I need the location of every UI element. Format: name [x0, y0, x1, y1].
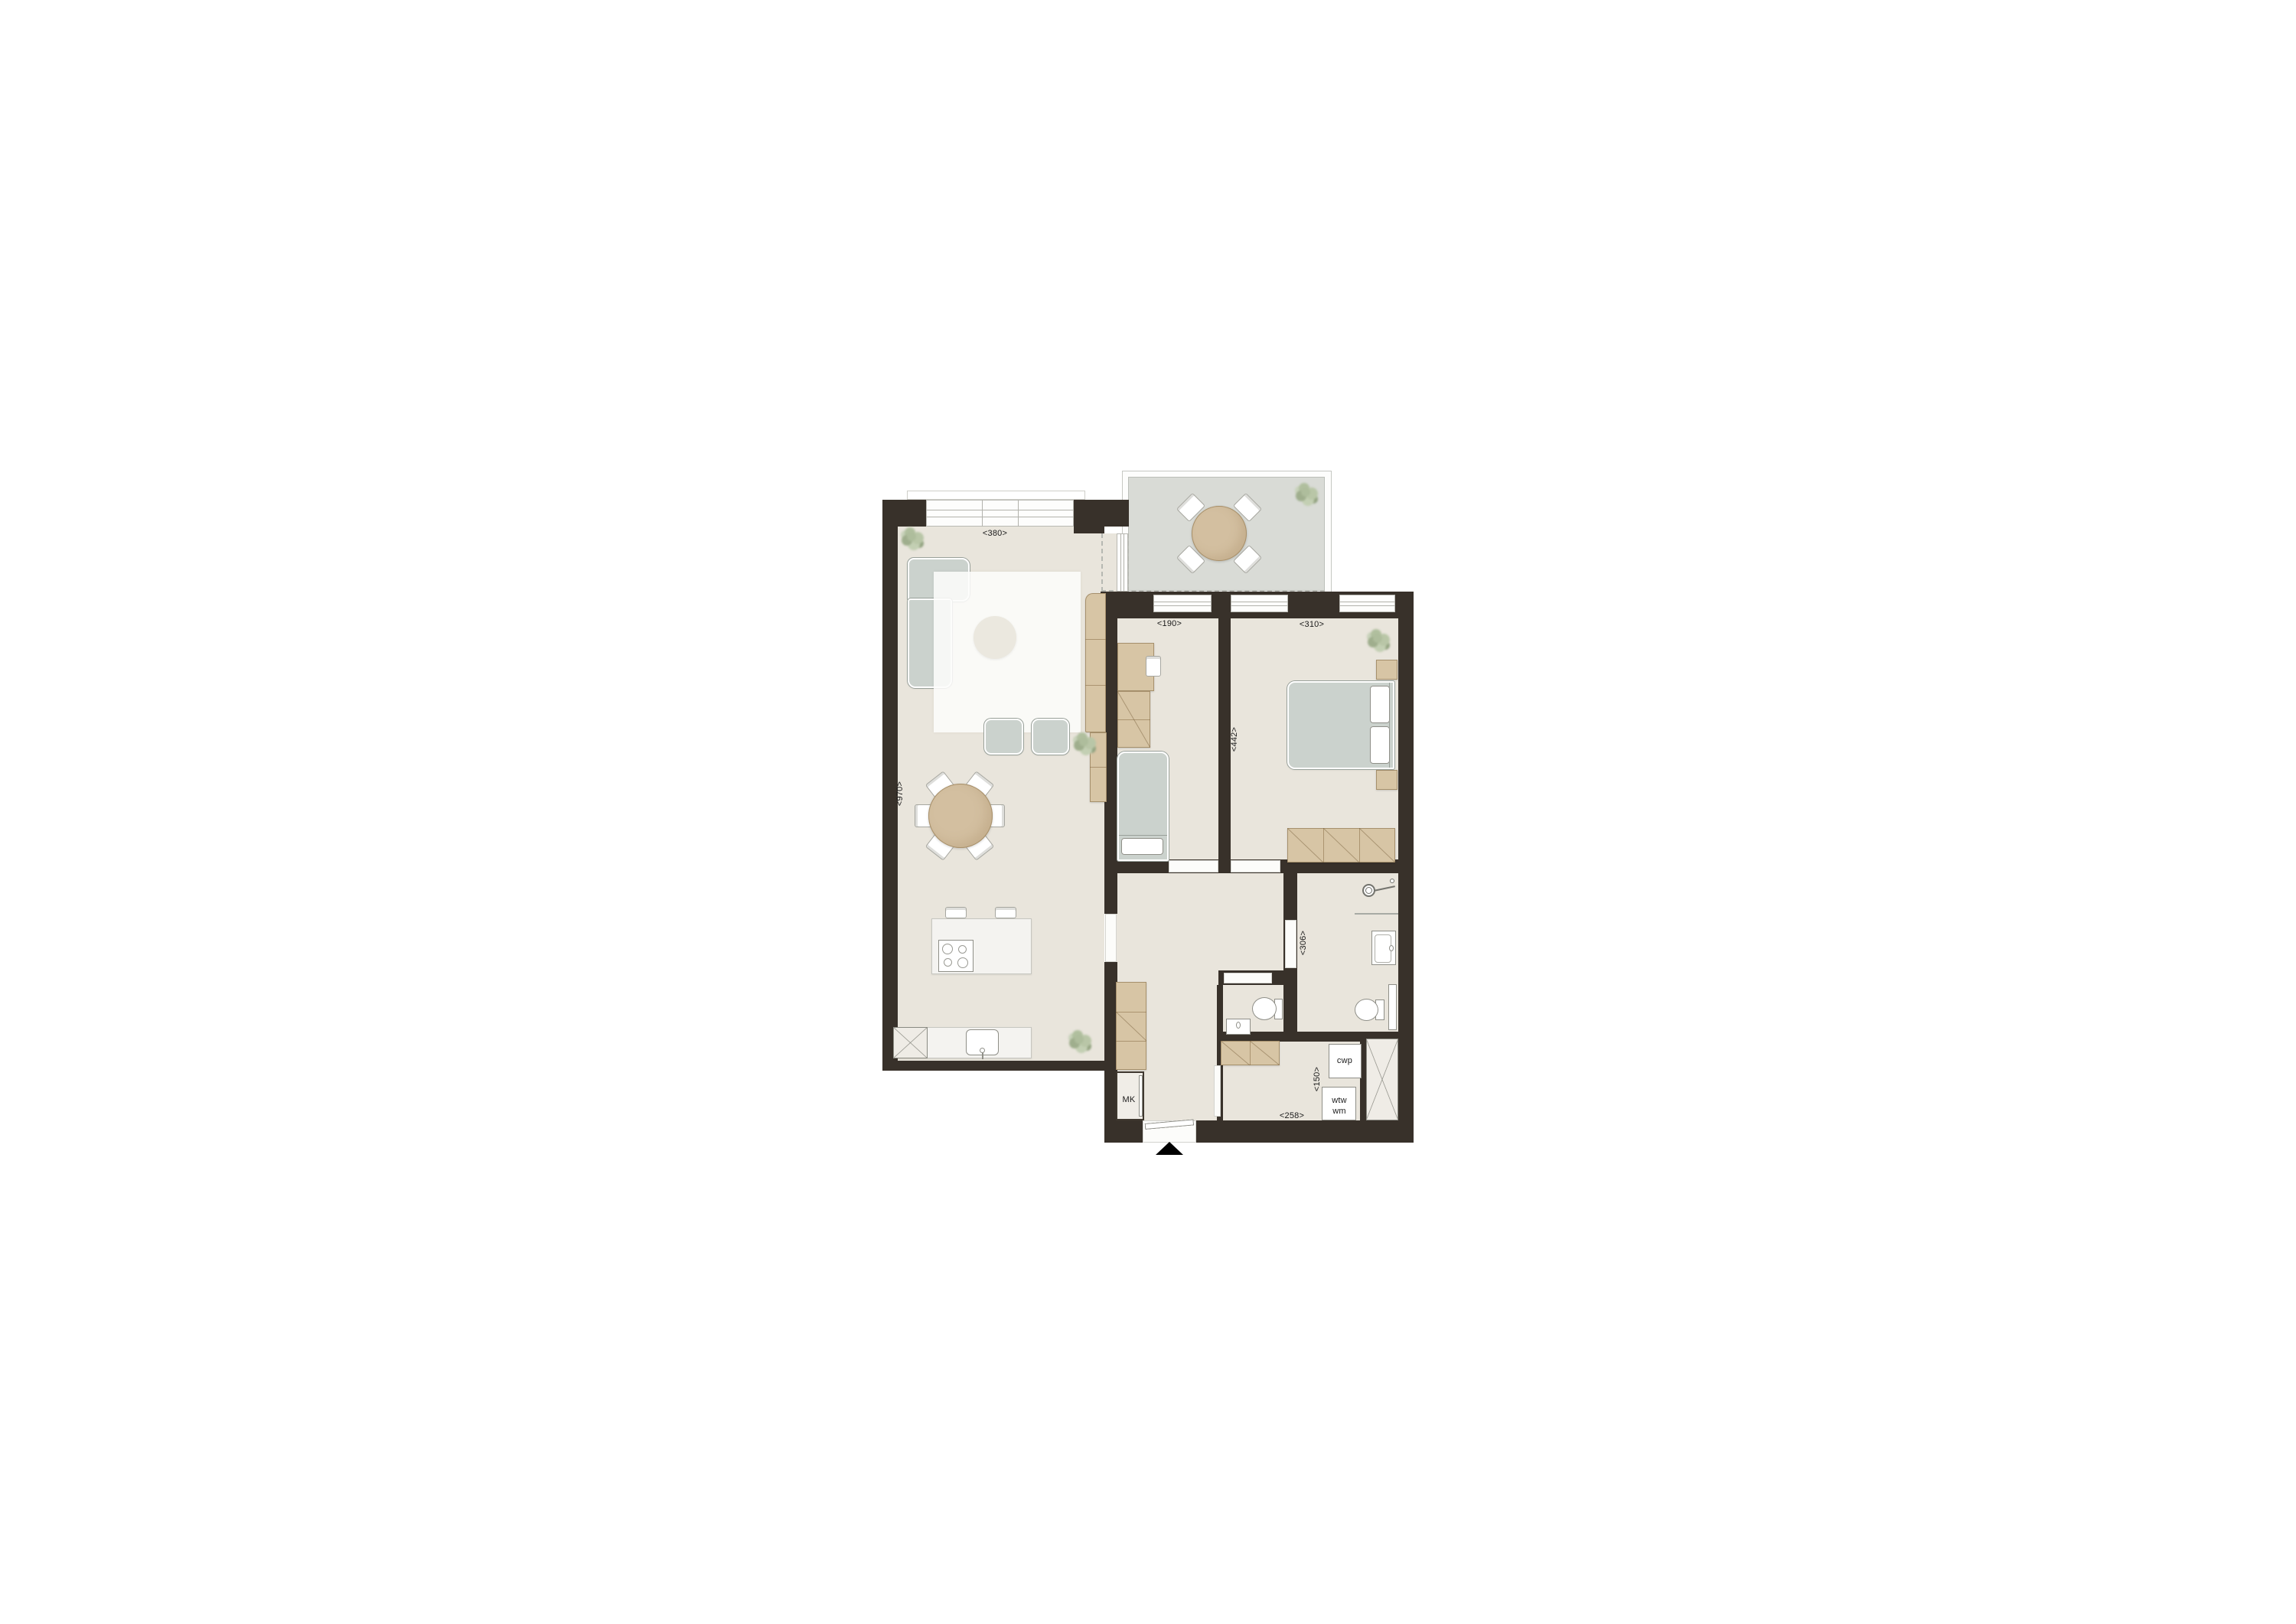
installation-shaft	[1366, 1039, 1398, 1120]
living-window-sill	[907, 491, 1085, 500]
door-bedroom2	[1169, 860, 1218, 872]
dim-utility-width: <150>	[1313, 1067, 1322, 1091]
living-low-cabinet	[1090, 732, 1107, 802]
bedroom2-cabinet	[1117, 691, 1150, 748]
living-window	[926, 500, 1074, 527]
bathroom-radiator	[1388, 984, 1397, 1030]
coffee-table	[974, 616, 1016, 659]
utility-cabinet	[1221, 1041, 1280, 1065]
bedroom1-window-right	[1339, 595, 1395, 612]
cooktop	[938, 940, 974, 972]
bathroom-toilet-bowl	[1355, 999, 1378, 1021]
door-living-hall	[1105, 914, 1117, 962]
door-bedroom1	[1231, 860, 1280, 872]
bedroom1-pillow	[1370, 726, 1390, 764]
burner	[957, 957, 968, 968]
wall-living-south	[882, 1061, 1117, 1071]
heat-pump-label: cwp	[1337, 1056, 1352, 1065]
bedroom2-window	[1153, 595, 1212, 612]
dim-bedroom2-width: <190>	[1157, 619, 1182, 628]
burner	[944, 958, 952, 967]
kitchen-appliance	[893, 1027, 928, 1058]
ottoman	[984, 719, 1023, 755]
plant	[1075, 1035, 1084, 1044]
door-wc	[1224, 973, 1272, 983]
bed-fold-line	[1119, 835, 1167, 836]
wc-basin-tap	[1236, 1022, 1241, 1029]
hall-wardrobe	[1116, 982, 1146, 1070]
ottoman	[1032, 719, 1069, 755]
living-wardrobe	[1085, 593, 1106, 732]
terrace-table	[1192, 506, 1247, 561]
floorplan: MK cwp wtw wm <380> <970> <190> <310> <4…	[0, 0, 2296, 1624]
bedroom1-wardrobe	[1287, 828, 1395, 863]
sink-tap-stem	[982, 1052, 983, 1059]
terrace-dashed-line-left	[1101, 533, 1103, 592]
wall-bedroom-divider	[1218, 618, 1231, 869]
heat-recovery-label: wtw	[1332, 1096, 1347, 1105]
living-terrace-window	[1117, 533, 1128, 592]
bedroom1-bed	[1287, 681, 1394, 769]
bedroom2-desk-chair	[1146, 656, 1161, 677]
wc-toilet-bowl	[1252, 997, 1277, 1020]
bedroom1-nightstand-top	[1376, 660, 1397, 680]
dim-hall-width: <258>	[1280, 1111, 1304, 1120]
wall-east	[1398, 592, 1414, 1143]
shower-valve	[1390, 879, 1394, 883]
bedroom1-window-left	[1231, 595, 1288, 612]
island-stool	[945, 907, 967, 918]
dim-bedroom1-width: <310>	[1300, 620, 1324, 629]
island-stool	[995, 907, 1016, 918]
wc-basin	[1226, 1019, 1251, 1035]
kitchen-sink	[966, 1029, 999, 1055]
bedroom2-pillow	[1121, 838, 1163, 855]
meter-closet-label: MK	[1123, 1095, 1136, 1104]
bathroom-basin	[1371, 931, 1396, 965]
plant	[907, 532, 916, 541]
dim-living-length: <970>	[895, 781, 905, 806]
bedroom1-pillow	[1370, 686, 1390, 723]
door-bathroom	[1285, 920, 1296, 968]
plant	[1079, 737, 1088, 746]
wall-top-right-block-b	[1104, 500, 1129, 527]
burner	[942, 944, 953, 954]
washing-machine-label: wm	[1332, 1107, 1346, 1116]
bedroom2-bed	[1117, 752, 1169, 861]
dim-bathroom-depth: <306>	[1299, 931, 1308, 955]
living-window-mullion	[1018, 500, 1019, 527]
dim-bedrooms-depth: <442>	[1230, 727, 1239, 752]
burner	[958, 945, 967, 954]
wall-top-right-block-a	[1074, 500, 1104, 533]
shower-glass-screen	[1355, 913, 1398, 915]
plant	[1373, 634, 1382, 643]
door-utility	[1214, 1065, 1221, 1117]
living-window-mullion	[982, 500, 983, 527]
entrance-arrow-icon	[1156, 1142, 1183, 1155]
plant	[1301, 488, 1310, 497]
dining-table	[928, 784, 993, 848]
dim-living-width: <380>	[983, 529, 1007, 538]
meter-closet-door	[1139, 1075, 1143, 1117]
bedroom1-nightstand-bottom	[1376, 770, 1397, 790]
basin-tap	[1389, 945, 1394, 951]
